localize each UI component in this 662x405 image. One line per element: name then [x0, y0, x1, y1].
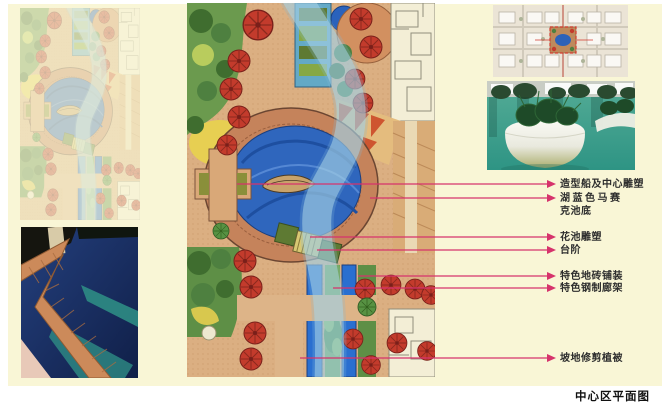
annotation-label-boat-sculpture: 造型船及中心雕塑	[560, 178, 644, 191]
left-faded-plan-thumbnail	[20, 8, 140, 220]
annotation-label-mosaic-pool-bottom: 湖蓝色马赛克池底	[560, 192, 623, 218]
central-landscape-plan	[187, 3, 435, 377]
drawing-title: 中心区平面图	[300, 388, 650, 404]
annotation-label-steel-pergola: 特色钢制廊架	[560, 282, 623, 295]
planter-pool-photo	[487, 81, 635, 170]
pool-edge-tile-photo	[21, 227, 138, 378]
annotation-label-steps: 台阶	[560, 244, 581, 257]
annotation-label-flowerbed-sculpture: 花池雕塑	[560, 231, 602, 244]
location-key-plan	[493, 5, 628, 77]
annotation-label-slope-vegetation: 坡地修剪植被	[560, 352, 623, 365]
